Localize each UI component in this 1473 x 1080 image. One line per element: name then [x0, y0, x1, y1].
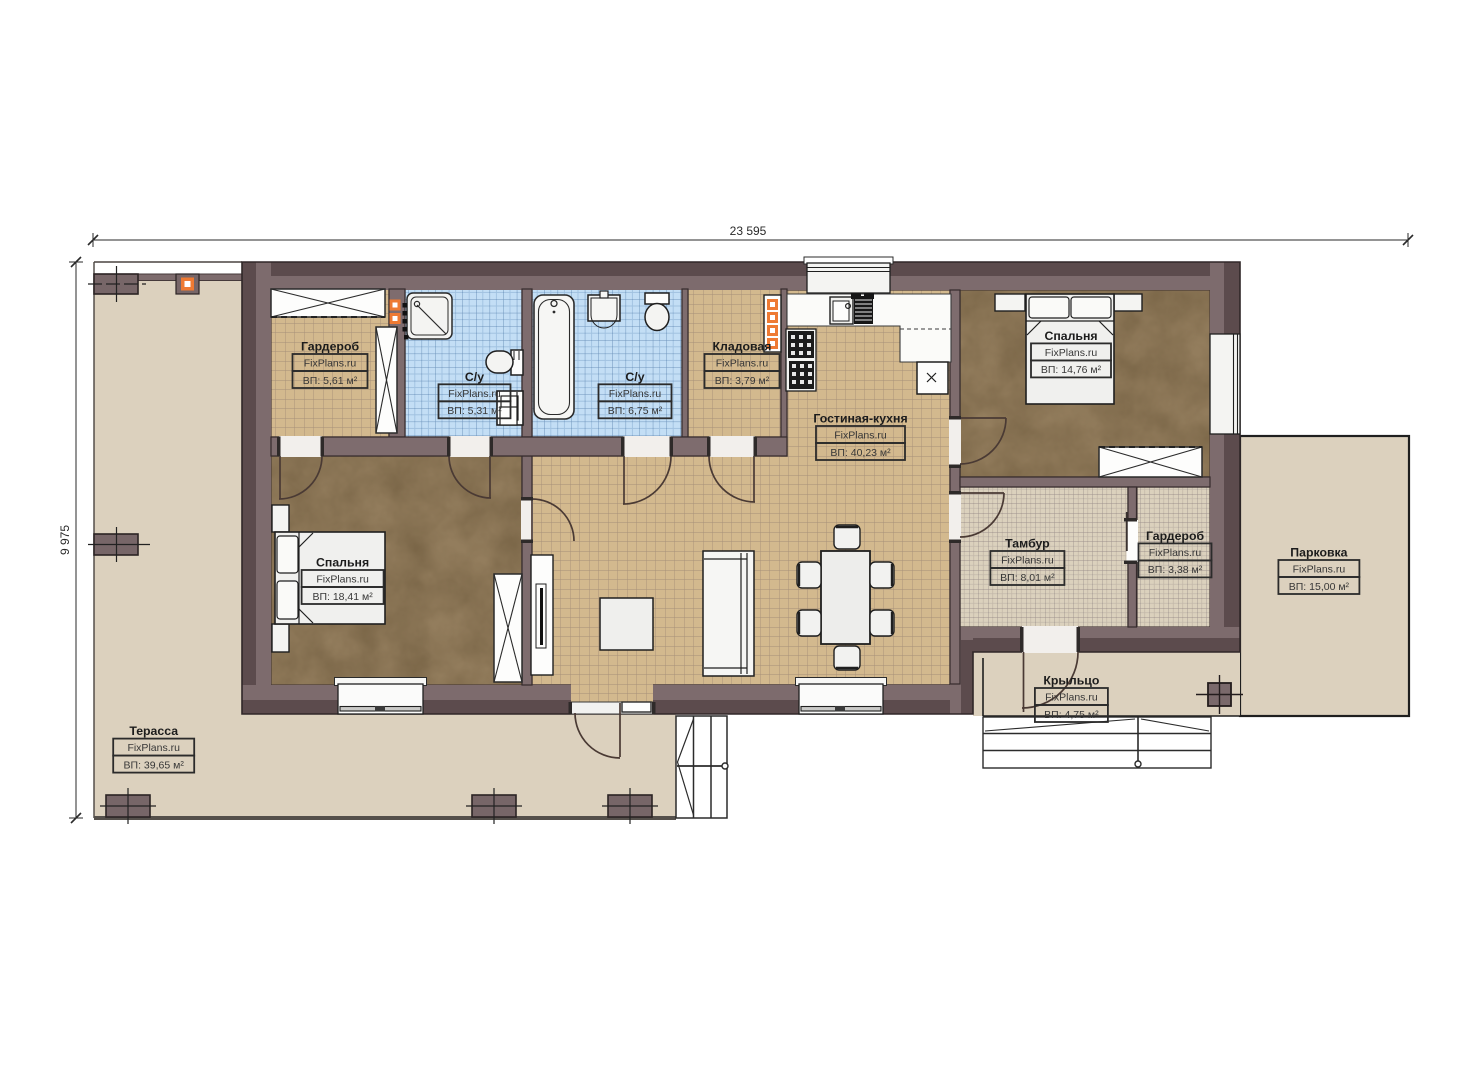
svg-text:FixPlans.ru: FixPlans.ru — [1001, 555, 1054, 567]
svg-text:ВП: 18,41 м²: ВП: 18,41 м² — [312, 591, 373, 603]
svg-text:Парковка: Парковка — [1290, 546, 1347, 560]
svg-text:Терасса: Терасса — [129, 724, 178, 738]
svg-text:FixPlans.ru: FixPlans.ru — [1045, 347, 1098, 359]
svg-text:FixPlans.ru: FixPlans.ru — [127, 742, 180, 754]
svg-text:FixPlans.ru: FixPlans.ru — [1149, 547, 1202, 559]
svg-text:FixPlans.ru: FixPlans.ru — [1293, 564, 1346, 576]
svg-text:Гостиная-кухня: Гостиная-кухня — [813, 412, 907, 426]
svg-text:ВП: 40,23 м²: ВП: 40,23 м² — [830, 447, 891, 459]
svg-text:ВП: 3,38 м²: ВП: 3,38 м² — [1148, 564, 1203, 576]
svg-text:ВП: 4,75 м²: ВП: 4,75 м² — [1044, 709, 1099, 721]
svg-text:С/у: С/у — [465, 370, 484, 384]
svg-text:Гардероб: Гардероб — [1146, 529, 1205, 543]
svg-text:FixPlans.ru: FixPlans.ru — [834, 430, 887, 442]
svg-text:ВП: 5,61 м²: ВП: 5,61 м² — [303, 375, 358, 387]
svg-text:23 595: 23 595 — [730, 224, 767, 238]
svg-text:С/у: С/у — [625, 370, 644, 384]
svg-text:9 975: 9 975 — [58, 525, 72, 555]
svg-text:Гардероб: Гардероб — [301, 340, 360, 354]
svg-text:Крыльцо: Крыльцо — [1043, 674, 1099, 688]
svg-text:FixPlans.ru: FixPlans.ru — [448, 388, 501, 400]
svg-text:ВП: 6,75 м²: ВП: 6,75 м² — [608, 405, 663, 417]
svg-text:ВП: 3,79 м²: ВП: 3,79 м² — [715, 375, 770, 387]
svg-text:Тамбур: Тамбур — [1005, 537, 1050, 551]
svg-text:FixPlans.ru: FixPlans.ru — [316, 574, 369, 586]
svg-text:ВП: 14,76 м²: ВП: 14,76 м² — [1041, 364, 1102, 376]
svg-text:FixPlans.ru: FixPlans.ru — [609, 388, 662, 400]
svg-text:Кладовая: Кладовая — [713, 340, 772, 354]
svg-text:Спальня: Спальня — [1044, 329, 1097, 343]
svg-text:Спальня: Спальня — [316, 556, 369, 570]
svg-text:FixPlans.ru: FixPlans.ru — [304, 358, 357, 370]
svg-text:FixPlans.ru: FixPlans.ru — [716, 358, 769, 370]
svg-text:ВП: 5,31 м²: ВП: 5,31 м² — [447, 405, 502, 417]
svg-text:ВП: 15,00 м²: ВП: 15,00 м² — [1289, 581, 1350, 593]
svg-text:ВП: 39,65 м²: ВП: 39,65 м² — [124, 759, 185, 771]
svg-text:ВП: 8,01 м²: ВП: 8,01 м² — [1000, 572, 1055, 584]
svg-text:FixPlans.ru: FixPlans.ru — [1045, 692, 1098, 704]
